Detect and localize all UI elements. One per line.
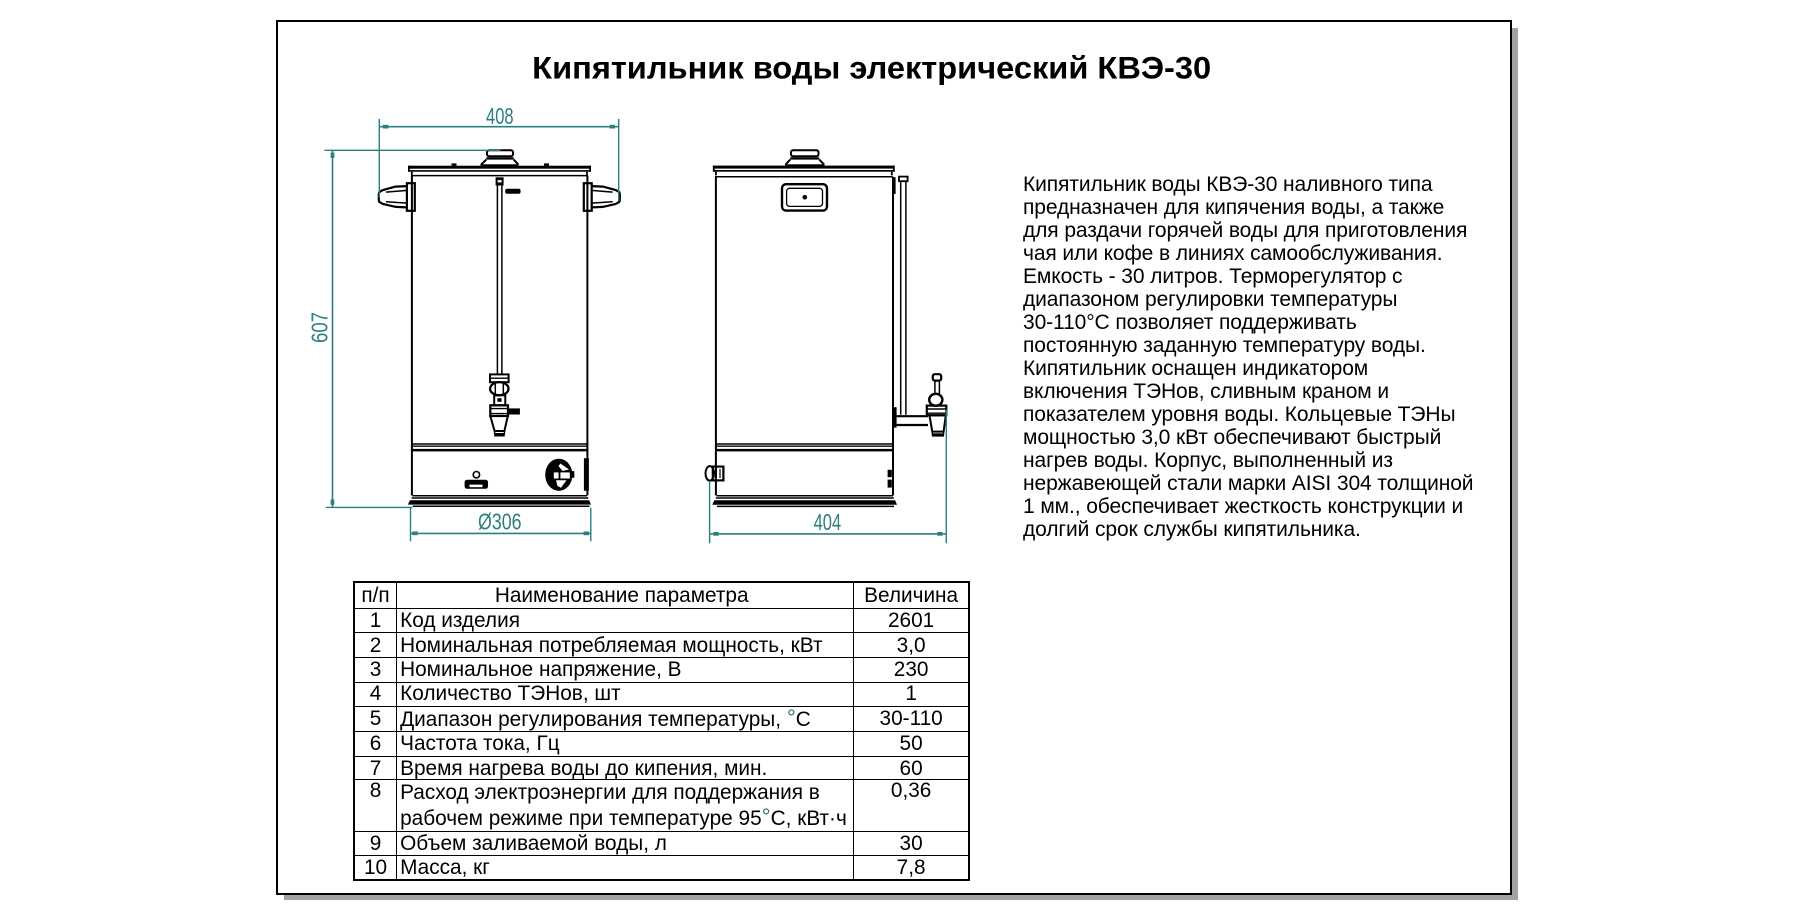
svg-text:408: 408: [486, 103, 514, 129]
svg-text:607: 607: [307, 312, 333, 343]
svg-text:Ø306: Ø306: [478, 509, 522, 535]
svg-text:404: 404: [814, 509, 842, 535]
